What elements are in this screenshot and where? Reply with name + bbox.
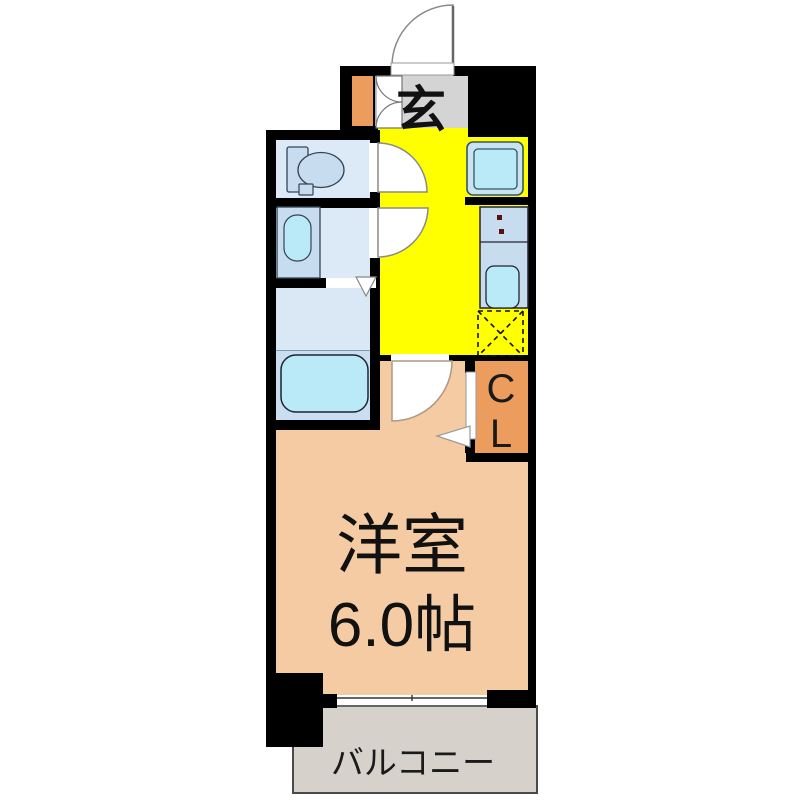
entrance-label: 玄 bbox=[396, 70, 446, 142]
wall-window-right bbox=[487, 690, 536, 708]
closet-label: CL bbox=[482, 367, 520, 457]
room-washroom bbox=[276, 206, 372, 280]
wall-kitchen-bottom-right bbox=[448, 355, 536, 361]
wall-closet-stub-bottom bbox=[465, 439, 475, 453]
wall-block-top-right bbox=[468, 66, 536, 137]
wall-leftcol-top bbox=[266, 130, 378, 140]
room-bathroom-upper bbox=[276, 286, 372, 352]
room-size-label: 6.0帖 bbox=[276, 574, 528, 664]
wall-closet-stub-top bbox=[465, 361, 475, 373]
floorplan: 玄 CL 洋室 6.0帖 バルコニー bbox=[0, 0, 800, 800]
wall-outer-left bbox=[266, 130, 276, 673]
wall-window-left-stub bbox=[323, 694, 337, 708]
wall-mid-c bbox=[370, 258, 380, 430]
room-kitchen bbox=[378, 128, 528, 358]
balcony-label: バルコニー bbox=[292, 736, 534, 784]
wall-outer-right bbox=[528, 66, 536, 708]
entry-door-arc bbox=[392, 5, 453, 66]
wall-kitchen-bottom-left bbox=[376, 355, 392, 361]
shoe-cabinet bbox=[350, 73, 375, 128]
wall-toilet-bottom bbox=[266, 198, 378, 208]
room-bathroom-lower bbox=[276, 350, 372, 423]
wall-bath-bottom bbox=[266, 420, 380, 430]
room-toilet bbox=[276, 140, 372, 200]
wall-washer-separator bbox=[465, 197, 536, 205]
wall-bath-top bbox=[266, 278, 326, 288]
wall-mid-a bbox=[370, 130, 380, 144]
